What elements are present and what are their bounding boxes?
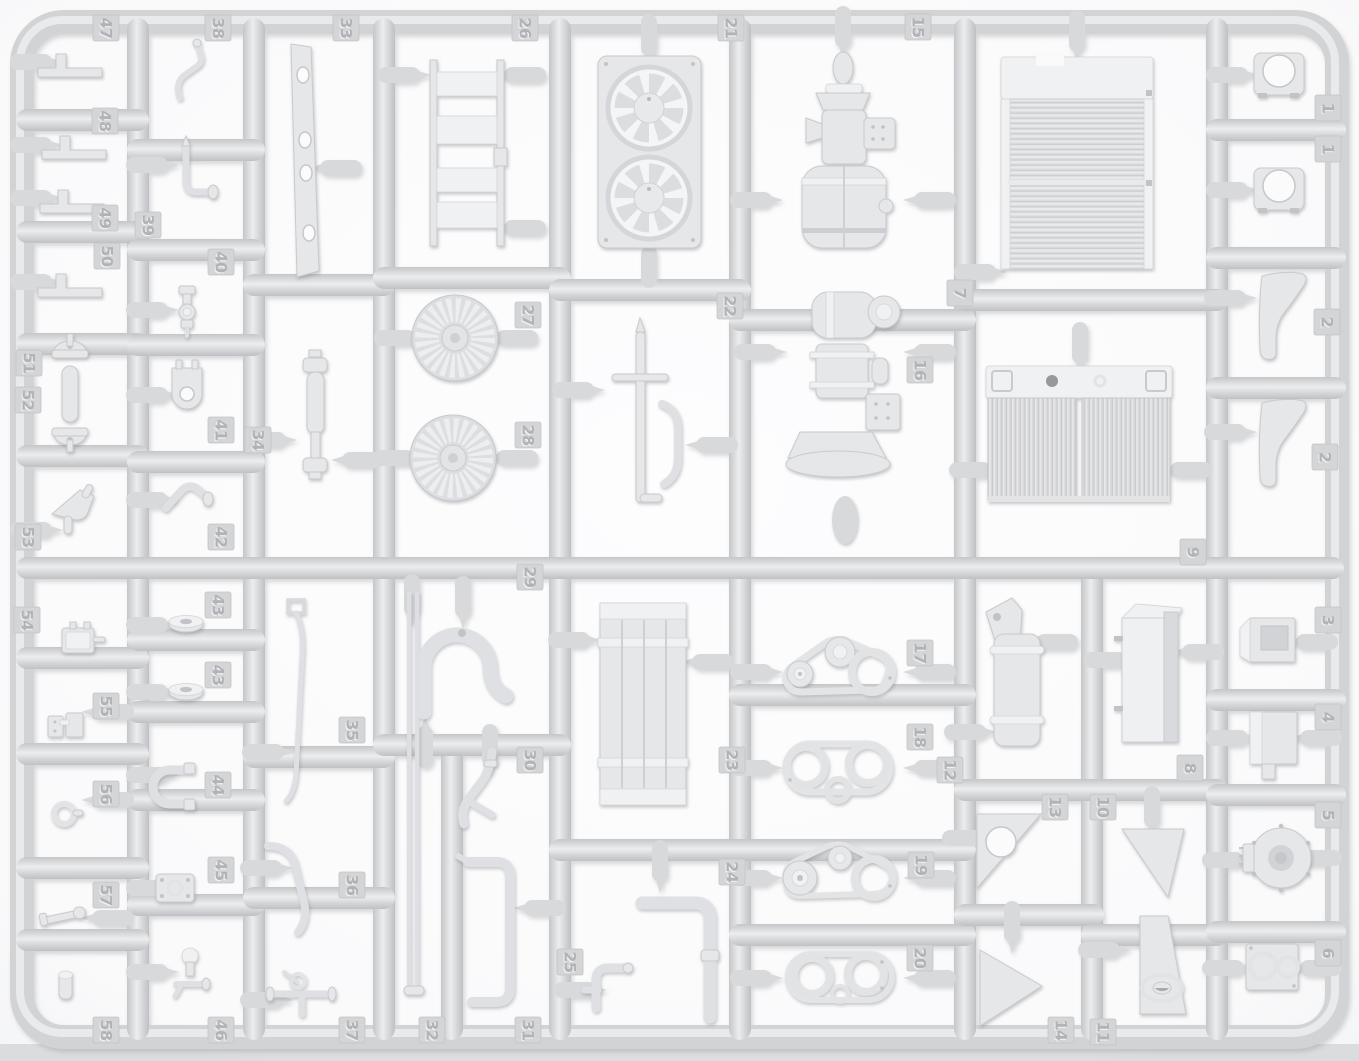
part-55-twin-box: [48, 713, 83, 737]
part-number-text: 11: [1094, 1021, 1113, 1043]
part-number-text: 8: [1181, 763, 1200, 774]
part-number-tag-12-cylindrical-tank: 1212: [937, 757, 963, 783]
part-number-text: 53: [19, 526, 38, 547]
part-number-text: 7: [951, 288, 970, 299]
part-number-text: 2: [1318, 317, 1337, 328]
part-number-text: 19: [912, 854, 931, 876]
part-number-tag-7-radiator: 77: [947, 280, 973, 306]
part-number-text: 47: [97, 17, 116, 38]
part-number-tag-13-triangular-gusset: 1313: [1042, 794, 1068, 820]
part-number-text: 34: [249, 429, 268, 451]
part-number-tag-26-ladder-frame: 2626: [512, 15, 538, 41]
part-number-tag-41-clevis-fork: 4141: [208, 417, 234, 443]
part-number-tag-47-angle-bracket: 4747: [93, 15, 119, 41]
part-number-tag-21-dual-fan-shroud: 2121: [718, 15, 744, 41]
part-number-text: 25: [561, 951, 580, 973]
part-number-text: 41: [212, 419, 231, 441]
part-number-text: 57: [97, 884, 116, 905]
part-number-tag-16-compressor-unit: 1616: [907, 357, 933, 383]
part-43a-pulley-wheel: [169, 616, 203, 633]
part-number-text: 2: [1316, 452, 1335, 463]
part-number-text: 32: [423, 1019, 442, 1040]
part-number-text: 35: [343, 719, 362, 741]
part-43b-pulley-wheel: [169, 684, 203, 701]
part-number-tag-39-elbow-tube: 3939: [135, 212, 161, 238]
part-number-text: 13: [1046, 796, 1065, 817]
part-number-tag-14-triangular-gusset: 1414: [1048, 1017, 1074, 1043]
part-number-text: 15: [909, 16, 928, 38]
part-27-turbine-wheel: [412, 295, 498, 381]
part-1b-hole-bracket: [1254, 168, 1304, 213]
part-number-tag-8-rectangular-tank: 88: [1177, 755, 1203, 781]
part-number-tag-19-belt-pulley-set: 1919: [908, 852, 934, 878]
part-number-tag-49-angle-bracket: 4949: [92, 205, 118, 231]
part-number-tag-15-compressor-unit: 1515: [905, 14, 931, 40]
part-number-tag-53-funnel-scoop: 5353: [15, 524, 41, 550]
part-number-text: 36: [343, 874, 362, 896]
part-number-text: 46: [212, 1019, 231, 1041]
part-number-text: 45: [212, 859, 231, 881]
part-number-text: 29: [521, 566, 540, 588]
part-21-dual-fan-shroud: [598, 56, 701, 248]
part-number-tag-2-curved-fender: 22: [1312, 444, 1338, 470]
part-number-tag-51-bearing-cap: 5151: [16, 350, 42, 376]
part-number-text: 12: [941, 759, 960, 780]
part-number-tag-55-twin-box: 5555: [93, 693, 119, 719]
part-number-text: 1: [1319, 144, 1338, 155]
part-number-text: 48: [96, 110, 115, 132]
part-number-tag-35-control-rod: 3535: [339, 717, 365, 743]
part-number-text: 31: [519, 1019, 538, 1041]
part-number-tag-20-belt-pulley-set: 2020: [907, 945, 933, 971]
part-number-tag-3-recessed-box: 33: [1315, 607, 1341, 633]
part-number-tag-29-u-pipe: 2929: [517, 564, 543, 590]
part-45-gasket-plate: [156, 874, 194, 902]
part-number-tag-1-hole-bracket: 11: [1315, 136, 1341, 162]
runner-pill: [62, 366, 78, 422]
part-7-radiator: [1001, 55, 1153, 269]
part-number-tag-4-tab-box: 44: [1315, 704, 1341, 730]
part-number-tag-50-angle-bracket: 5050: [94, 243, 120, 269]
part-number-tag-45-gasket-plate: 4545: [208, 857, 234, 883]
part-number-text: 33: [337, 17, 356, 38]
part-number-tag-34-drive-shaft: 3434: [245, 427, 271, 453]
part-number-text: 24: [723, 861, 742, 883]
part-number-text: 40: [212, 251, 231, 273]
sprue-photo-svg: 4747484849495050515152525353545455555656…: [0, 0, 1359, 1061]
part-number-tag-11-wedge-bracket: 1111: [1090, 1019, 1116, 1045]
part-number-tag-52-bearing-cap: 5252: [15, 387, 41, 413]
part-number-tag-24-l-pipe: 2424: [719, 859, 745, 885]
part-number-text: 43: [209, 594, 228, 615]
part-number-tag-32-twin-rods: 3232: [419, 1017, 445, 1043]
part-number-text: 22: [721, 295, 740, 316]
part-number-text: 49: [96, 207, 115, 229]
part-number-tag-40-valve-stack: 4040: [208, 249, 234, 275]
part-number-text: 21: [722, 17, 741, 39]
part-number-text: 56: [97, 783, 116, 805]
part-number-text: 52: [19, 389, 38, 410]
sprue-photo: 4747484849495050515152525353545455555656…: [0, 0, 1359, 1061]
part-number-tag-22-pipe-assembly: 2222: [717, 293, 743, 319]
part-1a-hole-bracket: [1254, 53, 1304, 98]
part-number-tag-31-z-pipe: 3131: [515, 1017, 541, 1043]
part-28-turbine-wheel: [410, 415, 496, 501]
part-number-tag-36-curved-pipe: 3636: [339, 872, 365, 898]
part-number-text: 58: [97, 1019, 116, 1041]
part-number-tag-37-pipe-manifold: 3737: [339, 1017, 365, 1043]
part-number-text: 55: [97, 695, 116, 717]
part-number-text: 9: [1184, 547, 1203, 558]
part-number-text: 5: [1319, 810, 1338, 821]
part-number-text: 50: [98, 245, 117, 267]
part-number-text: 28: [519, 424, 538, 446]
part-6-twin-port-plate: [1246, 944, 1298, 990]
part-number-text: 37: [343, 1019, 362, 1040]
part-number-tag-2-curved-fender: 22: [1314, 309, 1340, 335]
part-number-text: 30: [521, 749, 540, 771]
part-number-tag-38-bent-wire-rod: 3838: [205, 15, 231, 41]
part-number-tag-28-turbine-wheel: 2828: [515, 422, 541, 448]
part-number-text: 42: [212, 526, 231, 547]
part-number-tag-17-belt-pulley-set: 1717: [907, 640, 933, 666]
part-number-text: 17: [911, 642, 930, 663]
part-8-rectangular-tank: [1114, 604, 1182, 742]
part-number-text: 26: [516, 17, 535, 39]
part-number-tag-6-twin-port-plate: 66: [1315, 940, 1341, 966]
part-number-tag-42-angled-fitting: 4242: [208, 524, 234, 550]
part-number-tag-1-hole-bracket: 11: [1315, 95, 1341, 121]
part-number-text: 3: [1319, 615, 1338, 626]
part-number-tag-57-linkage-arm: 5757: [93, 882, 119, 908]
part-number-text: 10: [1094, 796, 1113, 818]
part-number-tag-5-fan-housing: 55: [1315, 802, 1341, 828]
part-number-text: 38: [209, 17, 228, 39]
part-number-text: 14: [1052, 1019, 1071, 1041]
part-number-tag-43-pulley-wheel: 4343: [205, 592, 231, 618]
part-number-tag-9-radiator-core-pair: 99: [1180, 539, 1206, 565]
part-number-tag-27-turbine-wheel: 2727: [515, 302, 541, 328]
part-number-tag-48-angle-bracket: 4848: [92, 108, 118, 134]
part-34-drive-shaft: [303, 350, 327, 479]
part-number-tag-18-belt-pulley-set: 1818: [907, 724, 933, 750]
part-3-recessed-box: [1240, 618, 1295, 662]
part-number-text: 20: [911, 947, 930, 969]
part-number-text: 18: [911, 726, 930, 748]
part-number-tag-44-u-hose: 4444: [205, 772, 231, 798]
part-number-tag-30-branch-pipe: 3030: [517, 747, 543, 773]
part-number-text: 1: [1319, 103, 1338, 114]
part-number-text: 27: [519, 304, 538, 325]
part-number-tag-54-junction-box: 5454: [14, 607, 40, 633]
part-number-text: 51: [20, 352, 39, 374]
part-number-text: 4: [1319, 712, 1338, 723]
part-number-text: 43: [209, 664, 228, 685]
part-number-text: 16: [911, 359, 930, 381]
part-23-cooler-core: [598, 603, 688, 805]
part-number-text: 39: [139, 214, 158, 236]
part-number-tag-25-t-fitting: 2525: [557, 949, 583, 975]
part-number-tag-23-cooler-core: 2323: [719, 747, 745, 773]
part-number-text: 54: [18, 609, 37, 631]
part-number-text: 44: [209, 774, 228, 796]
part-number-tag-58-small-cylinder-fitting: 5858: [93, 1017, 119, 1043]
part-number-tag-43-pulley-wheel: 4343: [205, 662, 231, 688]
part-number-tag-46-drain-valve: 4646: [208, 1017, 234, 1043]
part-number-text: 6: [1319, 948, 1338, 959]
part-number-text: 23: [723, 749, 742, 770]
part-number-tag-10-triangular-gusset: 1010: [1090, 794, 1116, 820]
part-58-small-cylinder-fitting: [59, 971, 73, 999]
part-number-tag-33-mounting-strip: 3333: [333, 15, 359, 41]
part-number-tag-56-ring-grommet: 5656: [93, 781, 119, 807]
